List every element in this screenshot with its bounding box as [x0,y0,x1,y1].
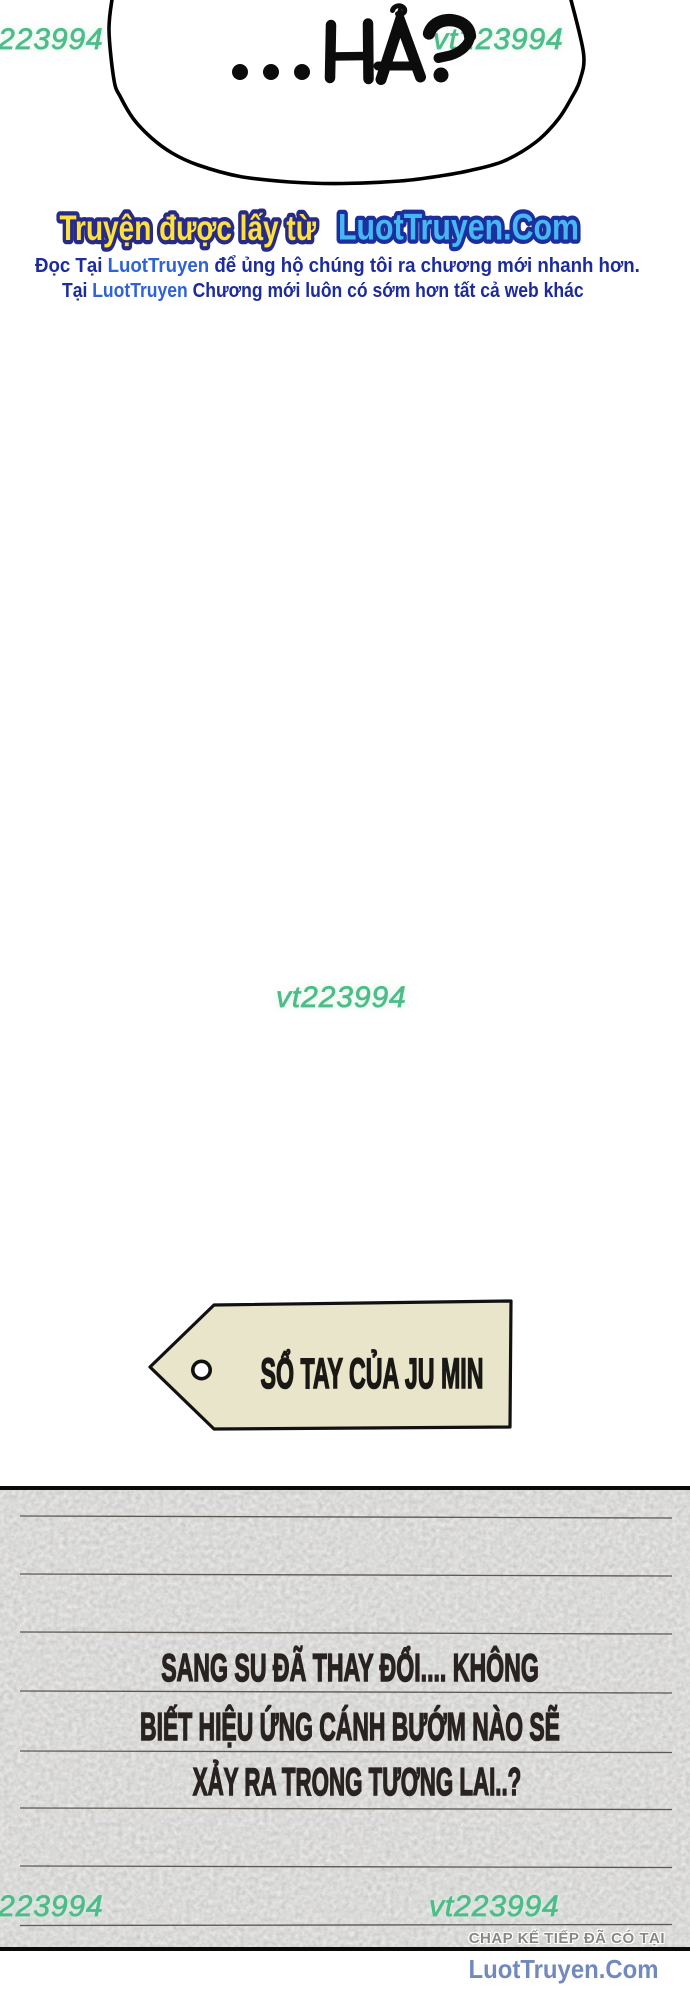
svg-text:BIẾT HIỆU ỨNG CÁNH BƯỚM NÀO SẼ: BIẾT HIỆU ỨNG CÁNH BƯỚM NÀO SẼ [140,1705,560,1749]
svg-text:SỔ TAY CỦA JU MIN: SỔ TAY CỦA JU MIN [261,1348,484,1398]
svg-text:Truyện được lấy từ: Truyện được lấy từ [60,208,317,248]
svg-text:SANG SU ĐÃ THAY ĐỔI.... KHÔNG: SANG SU ĐÃ THAY ĐỔI.... KHÔNG [161,1646,539,1690]
svg-text:LuotTruyen.Com: LuotTruyen.Com [338,207,579,249]
svg-text:XẢY RA TRONG TƯƠNG LAI..?: XẢY RA TRONG TƯƠNG LAI..? [193,1759,522,1803]
